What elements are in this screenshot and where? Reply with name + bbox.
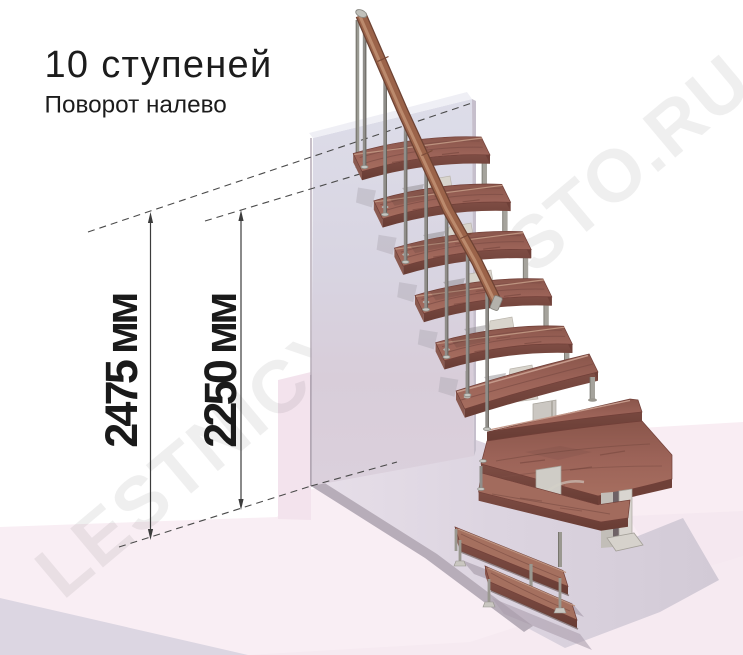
- svg-text:2475 мм: 2475 мм: [96, 294, 147, 448]
- svg-text:2250 мм: 2250 мм: [195, 294, 246, 448]
- svg-text:Поворот налево: Поворот налево: [45, 92, 227, 119]
- svg-text:10 ступеней: 10 ступеней: [45, 44, 273, 86]
